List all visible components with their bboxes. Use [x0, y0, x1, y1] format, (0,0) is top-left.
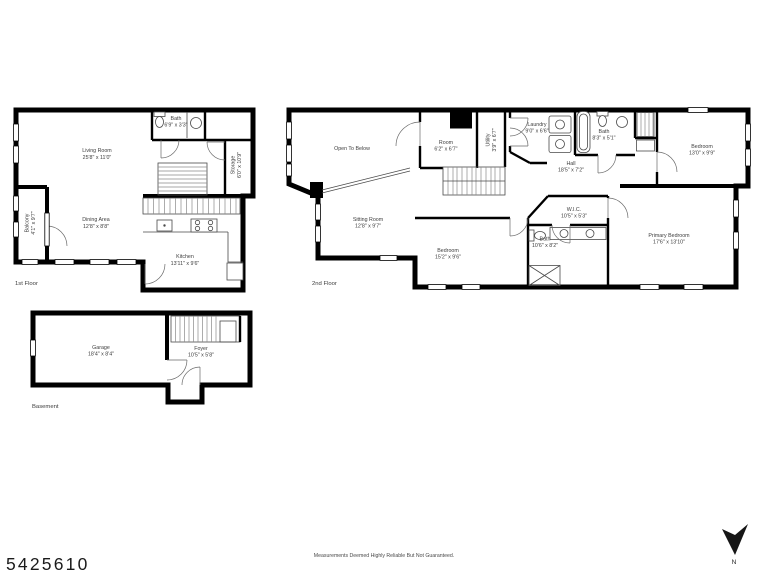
room-dims-hall: 18'5" x 7'2": [558, 168, 584, 174]
room-label-laundry: Laundry: [527, 122, 546, 128]
svg-text:6'0" x 10'9": 6'0" x 10'9": [237, 152, 243, 178]
room-dims-primary-bath: 10'6" x 8'2": [532, 243, 558, 249]
footer: 5425610 Measurements Deemed Highly Relia…: [6, 524, 748, 574]
room-label-hall: Hall: [566, 161, 575, 167]
room-label-kitchen: Kitchen: [176, 254, 194, 260]
room-label-storage: Storage 6'0" x 10'9": [231, 152, 244, 178]
room-dims-bath-1f: 6'9" x 3'3": [164, 123, 187, 129]
windows: [31, 340, 36, 356]
windows: [14, 124, 136, 264]
bathtub-icon: [577, 112, 590, 153]
vanity-icon: [550, 228, 606, 240]
floor-label-1st: 1st Floor: [15, 281, 38, 287]
room-dims-living-room: 25'8" x 11'0": [83, 155, 112, 161]
sink-icon: [617, 117, 628, 128]
closet-shelves: [637, 113, 654, 137]
room-label-room: Room: [439, 140, 454, 146]
first-floor-plan: Living Room 25'8" x 11'0" Bath 6'9" x 3'…: [14, 110, 253, 290]
room-label-garage: Garage: [92, 345, 110, 351]
washer-icon: [549, 116, 571, 133]
stairs-icon: [171, 316, 240, 342]
stairs-icon: [443, 167, 505, 195]
room-label-open-to-below: Open To Below: [334, 146, 370, 152]
room-label-bath-1f: Bath: [171, 116, 182, 122]
room-label-wic: W.I.C.: [567, 207, 581, 213]
room-dims-dining-area: 12'8" x 8'8": [83, 224, 109, 230]
interior-walls: [415, 110, 736, 287]
laundry-fixtures: [549, 116, 571, 153]
toilet-icon: [154, 112, 165, 117]
room-dims-kitchen: 13'11" x 9'6": [171, 261, 200, 267]
room-dims-room: 6'2" x 6'7": [434, 147, 457, 153]
floor-label-basement: Basement: [32, 404, 59, 410]
fridge-icon: [227, 263, 243, 280]
room-label-bedroom-1: Bedroom: [691, 144, 713, 150]
interior-walls: [16, 110, 253, 262]
disclaimer-text: Measurements Deemed Highly Reliable But …: [314, 553, 454, 559]
north-label: N: [732, 559, 737, 566]
room-label-foyer: Foyer: [194, 346, 208, 352]
dryer-icon: [549, 136, 571, 153]
svg-text:4'1" x 9'7": 4'1" x 9'7": [31, 211, 37, 234]
stove-icon: [191, 219, 217, 232]
toilet-icon: [529, 230, 534, 241]
exterior-walls: [289, 110, 748, 287]
room-dims-bedroom-1: 13'0" x 9'9": [689, 151, 715, 157]
floor-label-2nd: 2nd Floor: [312, 281, 337, 287]
chimney-shaft: [310, 182, 323, 198]
svg-text:Storage: Storage: [231, 156, 237, 175]
room-label-bedroom-2: Bedroom: [437, 248, 459, 254]
kitchen-fixtures: [143, 219, 243, 280]
room-dims-bedroom-2: 15'2" x 9'6": [435, 255, 461, 261]
shaft: [450, 113, 472, 129]
svg-text:3'9" x 6'7": 3'9" x 6'7": [492, 128, 498, 151]
floorplan-canvas: Living Room 25'8" x 11'0" Bath 6'9" x 3'…: [0, 0, 768, 576]
room-dims-bath-2f: 8'3" x 5'1": [592, 136, 615, 142]
room-label-primary-bedroom: Primary Bedroom: [648, 233, 690, 239]
room-dims-primary-bedroom: 17'6" x 13'10": [653, 240, 685, 246]
room-label-bath-2f: Bath: [599, 129, 610, 135]
room-label-primary-bath: Bath: [540, 237, 551, 243]
open-to-below-railing: [322, 168, 410, 193]
svg-text:Balcony: Balcony: [25, 213, 31, 232]
room-dims-foyer: 10'5" x 5'8": [188, 353, 214, 359]
windows: [287, 108, 751, 290]
second-floor-plan: Open To Below Room 6'2" x 6'7" Utility 3…: [287, 108, 751, 290]
svg-text:Utility: Utility: [486, 133, 492, 146]
listing-id-text: 5425610: [6, 554, 90, 574]
room-label-sitting-room: Sitting Room: [353, 217, 384, 223]
room-label-dining-area: Dining Area: [82, 217, 109, 223]
floor-plan-page: Living Room 25'8" x 11'0" Bath 6'9" x 3'…: [0, 0, 768, 576]
exterior-walls: [33, 313, 250, 402]
bath-fixtures: [577, 112, 655, 153]
room-dims-sitting-room: 12'8" x 9'7": [355, 224, 381, 230]
north-arrow-icon: [722, 524, 748, 555]
room-dims-garage: 18'4" x 8'4": [88, 352, 114, 358]
room-label-utility: Utility 3'9" x 6'7": [486, 128, 499, 151]
room-label-living-room: Living Room: [82, 148, 112, 154]
room-dims-laundry: 9'0" x 6'6": [525, 129, 548, 135]
room-dims-wic: 10'5" x 5'3": [561, 214, 587, 220]
basement-plan: Garage 18'4" x 8'4" Foyer 10'5" x 5'8" B…: [31, 313, 250, 410]
door-swings: [167, 360, 200, 385]
room-label-balcony: Balcony 4'1" x 9'7": [25, 211, 38, 234]
sink-icon: [191, 118, 202, 129]
